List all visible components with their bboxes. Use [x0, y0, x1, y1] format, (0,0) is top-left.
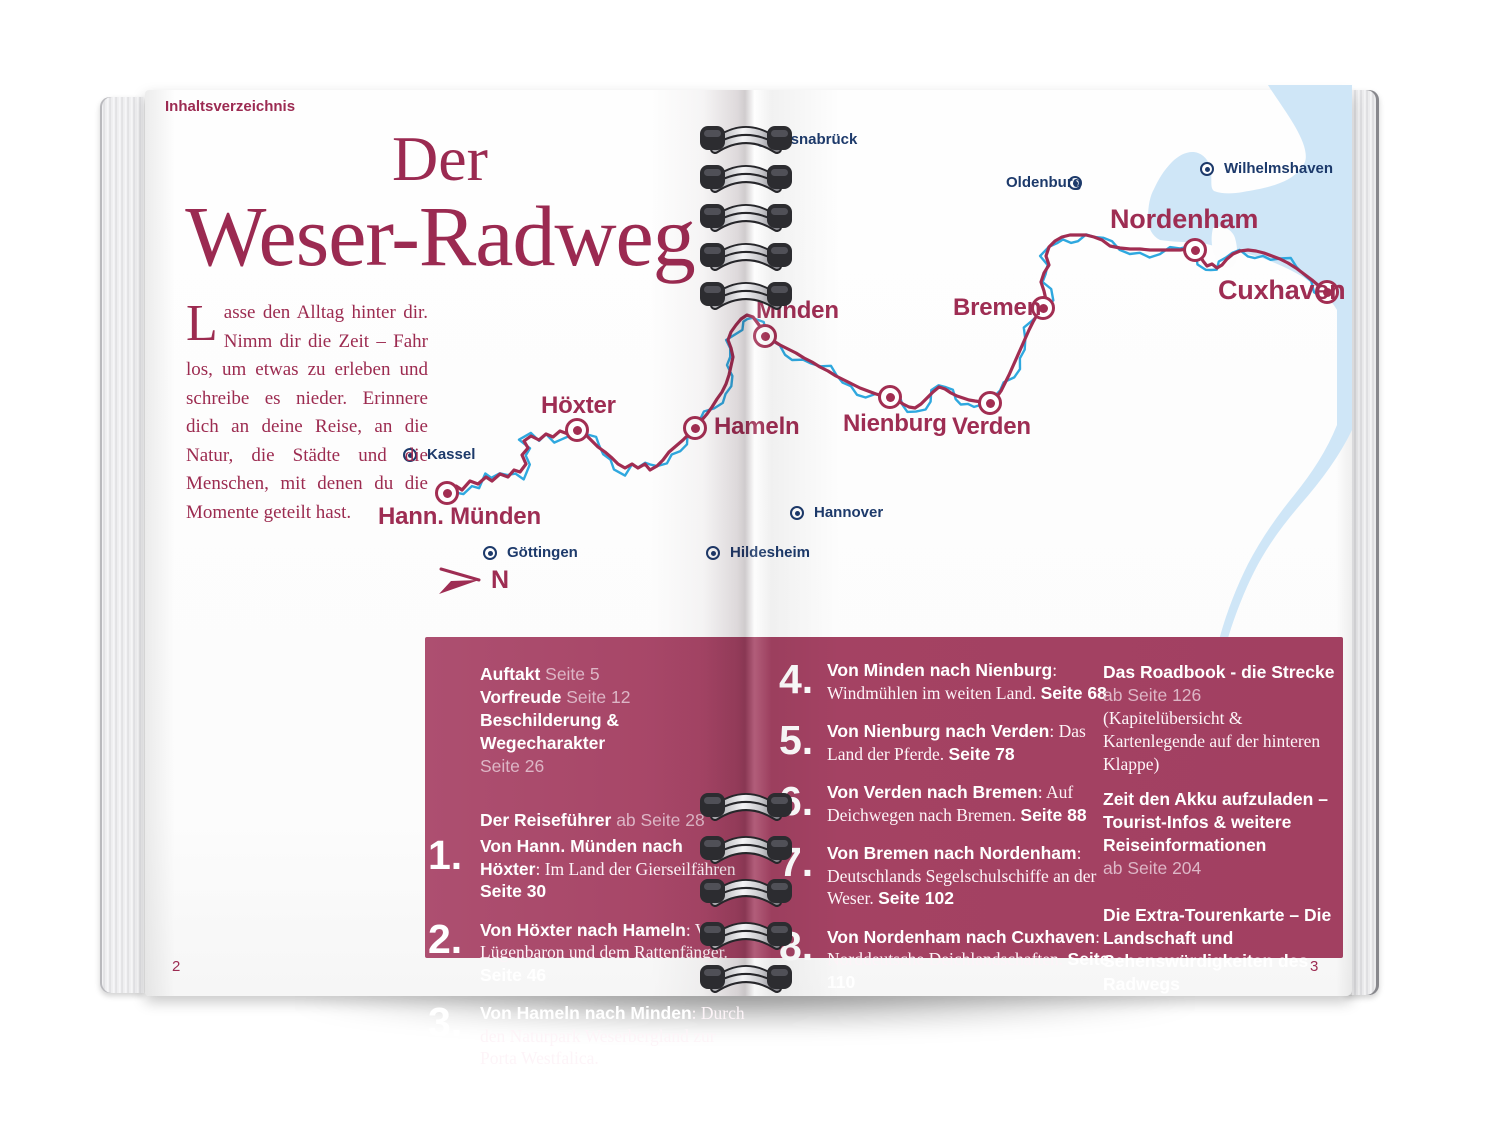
- toc-intro-page: Seite 26: [480, 755, 748, 778]
- page-number-right: 3: [1310, 958, 1318, 975]
- toc-stage-text: Von Nordenham nach Cuxha­ven: Norddeutsc…: [827, 926, 1112, 994]
- spiral-binding-coil: [699, 871, 793, 909]
- toc-extra-title: Das Roadbook - die Strecke: [1103, 661, 1345, 684]
- toc-stage-number: 5.: [779, 722, 813, 759]
- toc-intro-label: Vorfreude: [480, 687, 561, 707]
- toc-stage-text: Von Hameln nach Minden: Durch den Naturp…: [480, 1002, 748, 1070]
- toc-intro-page: Seite 12: [561, 687, 630, 707]
- toc-extra-title: Zeit den Akku aufzuladen – Tourist-Infos…: [1103, 788, 1345, 857]
- toc-extra-title: Die Extra-Tourenkarte – Die Land­schaft …: [1103, 904, 1345, 996]
- toc-extra-entry: Das Roadbook - die Streckeab Seite 126(K…: [1103, 661, 1345, 776]
- toc-stage-desc: Norddeutsche Deichlandschaften.: [827, 949, 1068, 969]
- toc-stage-entry: 8.Von Nordenham nach Cuxha­ven: Norddeut…: [827, 926, 1112, 994]
- toc-stage-text: Von Minden nach Nienburg: Windmühlen im …: [827, 659, 1112, 704]
- toc-stage-colon: :: [1077, 843, 1082, 863]
- toc-stage-entry: 5.Von Nienburg nach Verden: Das Land der…: [827, 720, 1112, 765]
- toc-extra-entry: Zeit den Akku aufzuladen – Tourist-Infos…: [1103, 788, 1345, 880]
- toc-stage-page: Seite 30: [480, 881, 546, 901]
- toc-stage-colon: :: [686, 920, 695, 940]
- toc-stage-title: Von Höxter nach Hameln: [480, 920, 686, 940]
- toc-stage-text: Von Verden nach Bremen: Auf Deichwegen n…: [827, 781, 1112, 826]
- intro-paragraph: Lasse den Alltag hinter dir. Nimm dir di…: [186, 299, 428, 527]
- toc-stage-title: Von Hameln nach Minden: [480, 1003, 692, 1023]
- toc-stage-number: 4.: [779, 661, 813, 698]
- toc-extra-note: (Kapitelübersicht & Kartenlegende auf de…: [1103, 707, 1345, 776]
- toc-extras-column: Das Roadbook - die Streckeab Seite 126(K…: [1103, 661, 1345, 1008]
- spiral-binding-coil: [699, 957, 793, 995]
- toc-stage-entry: 7.Von Bremen nach Nordenham: Deutschland…: [827, 842, 1112, 910]
- toc-stage-text: Von Nienburg nach Verden: Das Land der P…: [827, 720, 1112, 765]
- toc-extra-page: ab Seite 204: [1103, 857, 1345, 880]
- toc-stage-number: 2.: [428, 921, 462, 958]
- toc-stages-4-8: 4.Von Minden nach Nienburg: Windmühlen i…: [827, 659, 1112, 1009]
- spiral-binding-coil: [699, 118, 793, 156]
- spiral-binding-coil: [699, 196, 793, 234]
- north-arrow-icon: [437, 564, 485, 596]
- toc-stage-colon: :: [1038, 782, 1046, 802]
- toc-stage-colon: :: [1052, 660, 1057, 680]
- book-title: Der Weser-Radweg: [155, 126, 725, 280]
- toc-guide-page-num: ab Seite 28: [616, 810, 705, 830]
- toc-extra-entry: Die Extra-Tourenkarte – Die Land­schaft …: [1103, 904, 1345, 996]
- toc-stage-entry: 6.Von Verden nach Bremen: Auf Deichwegen…: [827, 781, 1112, 826]
- spiral-binding-coil: [699, 274, 793, 312]
- toc-intro-page: Seite 5: [540, 664, 599, 684]
- page-stack-left-edge: [100, 97, 144, 993]
- compass-label: N: [491, 566, 509, 595]
- spiral-binding-coil: [699, 235, 793, 273]
- page-number-left: 2: [172, 958, 180, 975]
- toc-stage-number: 3.: [428, 1004, 462, 1041]
- toc-intro-label: Auftakt: [480, 664, 540, 684]
- book-title-line1: Der: [155, 126, 725, 192]
- toc-stage-page: Seite 88: [1020, 805, 1086, 825]
- spiral-binding-coil: [699, 828, 793, 866]
- toc-intro-item: Vorfreude Seite 12: [480, 686, 748, 709]
- compass-north: N: [437, 564, 509, 596]
- toc-stage-title: Von Bremen nach Nordenham: [827, 843, 1077, 863]
- spiral-binding-coil: [699, 157, 793, 195]
- toc-stage-text: Von Bremen nach Nordenham: Deutschlands …: [827, 842, 1112, 910]
- toc-intro-label: Beschilderung & Wegecharakter: [480, 710, 619, 753]
- toc-stage-colon: :: [1095, 927, 1100, 947]
- toc-stage-colon: :: [535, 859, 544, 879]
- book-title-line2: Weser-Radweg: [155, 192, 725, 280]
- toc-intro-block: Auftakt Seite 5Vorfreude Seite 12Beschil…: [480, 663, 748, 778]
- toc-stage-title: Von Nordenham nach Cuxha­ven: [827, 927, 1095, 947]
- page-header-label: Inhaltsverzeichnis: [165, 98, 295, 115]
- toc-stage-page: Seite 46: [480, 965, 546, 985]
- toc-stage-page: Seite 68: [1041, 683, 1107, 703]
- toc-stage-title: Von Verden nach Bremen: [827, 782, 1038, 802]
- toc-stage-entry: 3.Von Hameln nach Minden: Durch den Natu…: [480, 1002, 748, 1070]
- toc-extra-page: ab Seite 126: [1103, 684, 1345, 707]
- toc-guide-label: Der Reiseführer: [480, 810, 611, 830]
- toc-intro-item: Beschilderung & WegecharakterSeite 26: [480, 709, 748, 778]
- toc-stage-colon: :: [692, 1003, 701, 1023]
- book-spread-photo: Hann. MündenHöxterHamelnMindenNienburgVe…: [0, 0, 1500, 1125]
- toc-box: Auftakt Seite 5Vorfreude Seite 12Beschil…: [425, 637, 1343, 958]
- toc-stage-desc: Deutschlands Segelschulschiffe an der We…: [827, 866, 1096, 909]
- toc-stage-title: Von Nienburg nach Verden: [827, 721, 1049, 741]
- toc-stage-entry: 4.Von Minden nach Nienburg: Windmühlen i…: [827, 659, 1112, 704]
- toc-stage-page: Seite 78: [948, 744, 1014, 764]
- spiral-binding-coil: [699, 914, 793, 952]
- toc-intro-item: Auftakt Seite 5: [480, 663, 748, 686]
- toc-stage-desc: Windmühlen im weiten Land.: [827, 683, 1041, 703]
- toc-stage-number: 1.: [428, 837, 462, 874]
- toc-stage-page: Seite 56: [603, 1048, 669, 1068]
- intro-dropcap: L: [186, 299, 224, 345]
- toc-stage-colon: :: [1049, 721, 1058, 741]
- spiral-binding-coil: [699, 785, 793, 823]
- toc-stage-title: Von Minden nach Nienburg: [827, 660, 1052, 680]
- toc-stage-page: Seite 102: [878, 888, 954, 908]
